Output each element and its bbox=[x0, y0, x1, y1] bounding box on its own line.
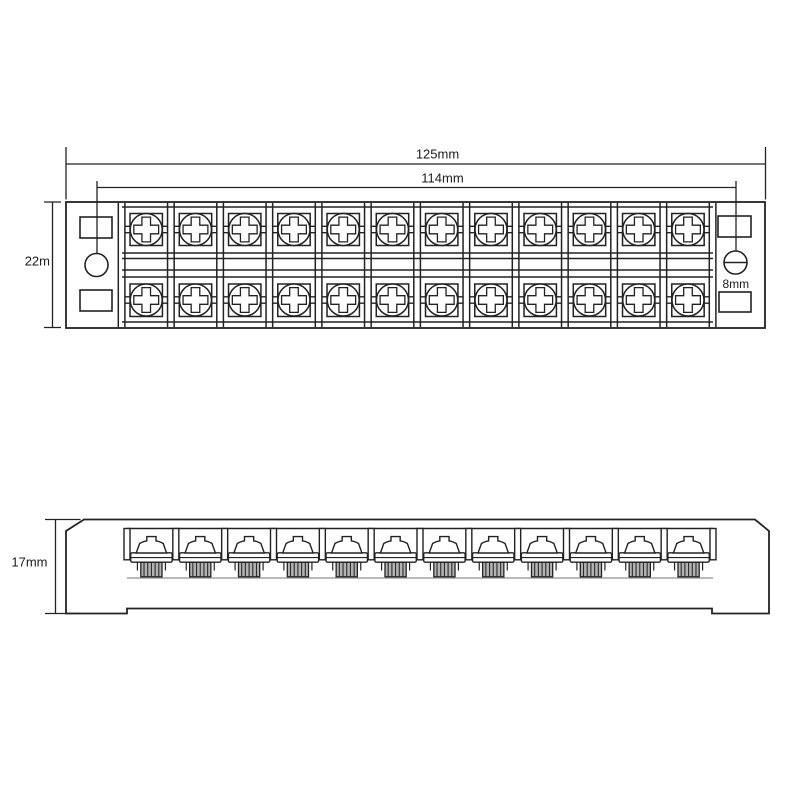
terminal-cell bbox=[519, 284, 562, 317]
side-screw bbox=[668, 537, 709, 577]
right-mount-slot-top bbox=[718, 216, 751, 237]
dimension-8mm-label: 8mm bbox=[722, 277, 749, 291]
dimension-17mm-label: 17mm bbox=[11, 555, 47, 570]
terminal-cell bbox=[125, 214, 168, 246]
dimension-side-height: 17mm bbox=[11, 520, 80, 614]
terminal-cell bbox=[371, 214, 414, 246]
terminal-divider bbox=[611, 203, 618, 327]
terminal-cell bbox=[519, 214, 562, 246]
side-screw bbox=[131, 537, 172, 577]
terminal-cell bbox=[371, 284, 414, 317]
terminal-cell bbox=[667, 214, 710, 246]
screw-head-side bbox=[527, 537, 557, 553]
right-mount-slot-bottom bbox=[719, 292, 751, 312]
side-partition-wall bbox=[515, 529, 521, 560]
side-screw bbox=[180, 537, 221, 577]
screw-head-side bbox=[478, 537, 508, 553]
side-partition-wall bbox=[612, 529, 618, 560]
left-mount-slot-bottom bbox=[80, 290, 112, 311]
terminal-cell bbox=[322, 214, 365, 246]
side-screw bbox=[228, 537, 269, 577]
terminal-cell bbox=[420, 284, 463, 317]
terminal-cell bbox=[420, 214, 463, 246]
side-partition-wall bbox=[368, 529, 374, 560]
side-screw bbox=[277, 537, 318, 577]
terminal-divider bbox=[709, 203, 716, 327]
terminal-cell bbox=[174, 284, 217, 317]
side-partition-wall bbox=[466, 529, 472, 560]
terminal-divider bbox=[660, 203, 667, 327]
top-view: 8mm bbox=[66, 202, 765, 328]
terminal-cell bbox=[273, 284, 316, 317]
terminal-cell bbox=[470, 284, 513, 317]
terminal-cell bbox=[125, 284, 168, 317]
terminal-cell bbox=[223, 214, 266, 246]
terminal-cell bbox=[568, 284, 611, 317]
side-screw bbox=[619, 537, 660, 577]
drawing-canvas: 8mm 125mm 114mm bbox=[0, 0, 800, 800]
side-screw bbox=[521, 537, 562, 577]
terminal-cell bbox=[223, 284, 266, 317]
terminal-cell bbox=[667, 284, 710, 317]
terminal-cells bbox=[125, 214, 709, 317]
terminal-cell bbox=[617, 284, 660, 317]
terminal-block-drawing: 8mm 125mm 114mm bbox=[0, 0, 800, 800]
side-view bbox=[66, 520, 769, 614]
side-screw bbox=[424, 537, 465, 577]
side-screw bbox=[570, 537, 611, 577]
side-partition-wall bbox=[661, 529, 667, 560]
screw-head-side bbox=[234, 537, 264, 553]
terminal-cell bbox=[273, 214, 316, 246]
side-partition-wall bbox=[564, 529, 570, 560]
screw-head-side bbox=[625, 537, 655, 553]
side-partition-wall bbox=[271, 529, 277, 560]
screw-head-side bbox=[429, 537, 459, 553]
terminal-divider bbox=[118, 203, 125, 327]
side-partition-wall bbox=[222, 529, 228, 560]
dimension-114mm-label: 114mm bbox=[421, 171, 463, 186]
screw-head-side bbox=[576, 537, 606, 553]
dimension-body-depth: 22m bbox=[25, 202, 61, 328]
screw-head-side bbox=[136, 537, 166, 553]
terminal-cell bbox=[617, 214, 660, 246]
right-end-cap: 8mm bbox=[718, 216, 751, 312]
dimension-125mm-label: 125mm bbox=[416, 147, 459, 162]
side-screw bbox=[326, 537, 367, 577]
dimension-overall-width: 125mm bbox=[66, 147, 766, 200]
screw-head-side bbox=[185, 537, 215, 553]
screw-head-side bbox=[380, 537, 410, 553]
terminal-cell bbox=[470, 214, 513, 246]
terminal-cell bbox=[174, 214, 217, 246]
side-partition-wall bbox=[173, 529, 179, 560]
terminal-divider bbox=[168, 203, 175, 327]
terminal-divider bbox=[414, 203, 421, 327]
side-partition-wall bbox=[124, 529, 130, 560]
dimension-22m-label: 22m bbox=[25, 254, 50, 269]
terminal-divider bbox=[315, 203, 322, 327]
terminal-cell bbox=[322, 284, 365, 317]
left-mount-hole bbox=[85, 254, 108, 277]
screw-head-side bbox=[283, 537, 313, 553]
terminal-divider bbox=[463, 203, 470, 327]
terminal-divider bbox=[266, 203, 273, 327]
terminal-divider bbox=[217, 203, 224, 327]
screw-head-side bbox=[332, 537, 362, 553]
terminal-divider bbox=[365, 203, 372, 327]
side-partition-wall bbox=[710, 529, 716, 560]
side-screw bbox=[375, 537, 416, 577]
side-screw bbox=[473, 537, 514, 577]
terminal-divider bbox=[512, 203, 519, 327]
terminal-divider bbox=[562, 203, 569, 327]
left-mount-slot-top bbox=[80, 217, 112, 238]
side-partition-wall bbox=[319, 529, 325, 560]
side-partition-wall bbox=[417, 529, 423, 560]
screw-head-side bbox=[673, 537, 703, 553]
terminal-cell bbox=[568, 214, 611, 246]
left-end-cap bbox=[80, 217, 112, 311]
